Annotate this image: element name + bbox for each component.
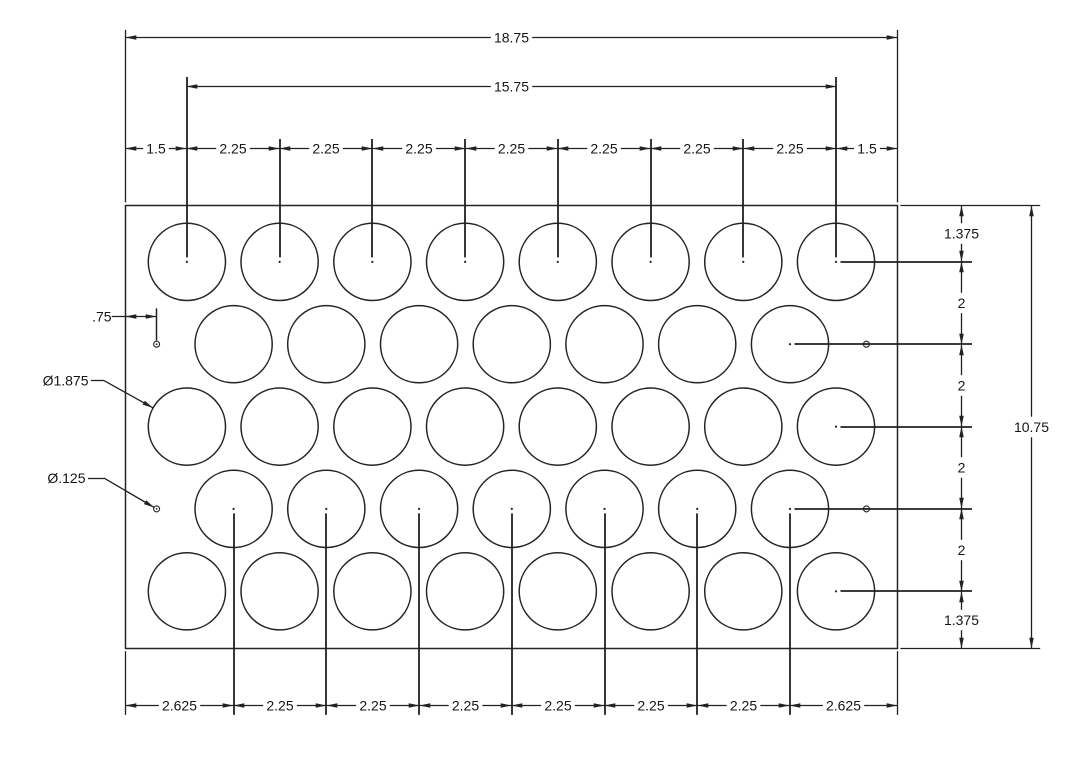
svg-text:2.25: 2.25 xyxy=(498,140,525,156)
svg-text:10.75: 10.75 xyxy=(1014,419,1049,435)
svg-text:2: 2 xyxy=(958,459,966,475)
svg-text:2.25: 2.25 xyxy=(312,140,339,156)
svg-text:.75: .75 xyxy=(92,308,112,324)
svg-text:2.25: 2.25 xyxy=(730,697,757,713)
svg-text:1.5: 1.5 xyxy=(857,140,877,156)
svg-text:18.75: 18.75 xyxy=(494,29,529,45)
svg-text:2: 2 xyxy=(958,377,966,393)
svg-text:Ø.125: Ø.125 xyxy=(47,470,85,486)
svg-text:Ø1.875: Ø1.875 xyxy=(43,373,89,389)
svg-text:2.25: 2.25 xyxy=(219,140,246,156)
svg-text:2.625: 2.625 xyxy=(162,697,197,713)
svg-text:2: 2 xyxy=(958,295,966,311)
svg-text:1.375: 1.375 xyxy=(944,612,979,628)
svg-text:1.375: 1.375 xyxy=(944,225,979,241)
svg-text:2.25: 2.25 xyxy=(359,697,386,713)
svg-text:2.25: 2.25 xyxy=(544,697,571,713)
svg-text:15.75: 15.75 xyxy=(494,78,529,94)
svg-text:2.25: 2.25 xyxy=(776,140,803,156)
svg-text:2.25: 2.25 xyxy=(405,140,432,156)
svg-text:2.625: 2.625 xyxy=(826,697,861,713)
svg-text:1.5: 1.5 xyxy=(146,140,166,156)
svg-text:2.25: 2.25 xyxy=(637,697,664,713)
svg-text:2.25: 2.25 xyxy=(452,697,479,713)
svg-text:2.25: 2.25 xyxy=(590,140,617,156)
svg-text:2.25: 2.25 xyxy=(683,140,710,156)
svg-text:2.25: 2.25 xyxy=(266,697,293,713)
svg-text:2: 2 xyxy=(958,542,966,558)
